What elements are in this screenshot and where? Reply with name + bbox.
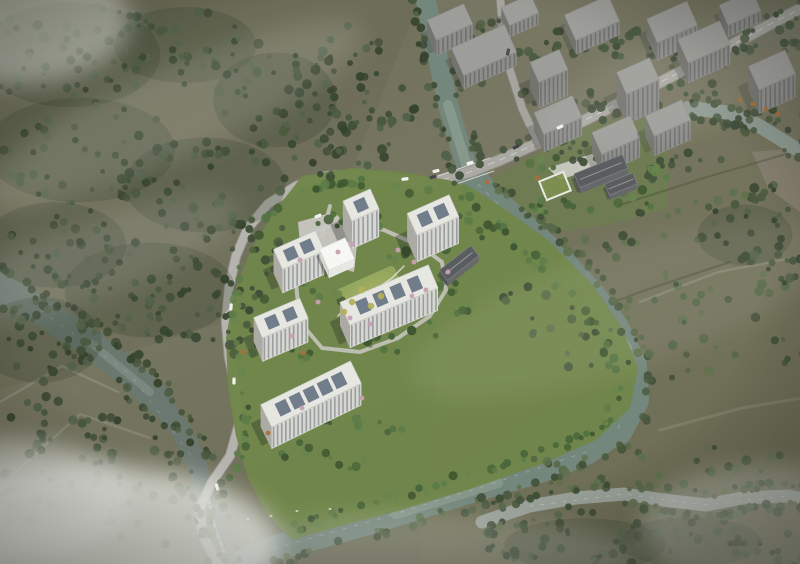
aerial-site-rendering [0,0,800,564]
vignette [0,0,800,564]
scene-svg [0,0,800,564]
